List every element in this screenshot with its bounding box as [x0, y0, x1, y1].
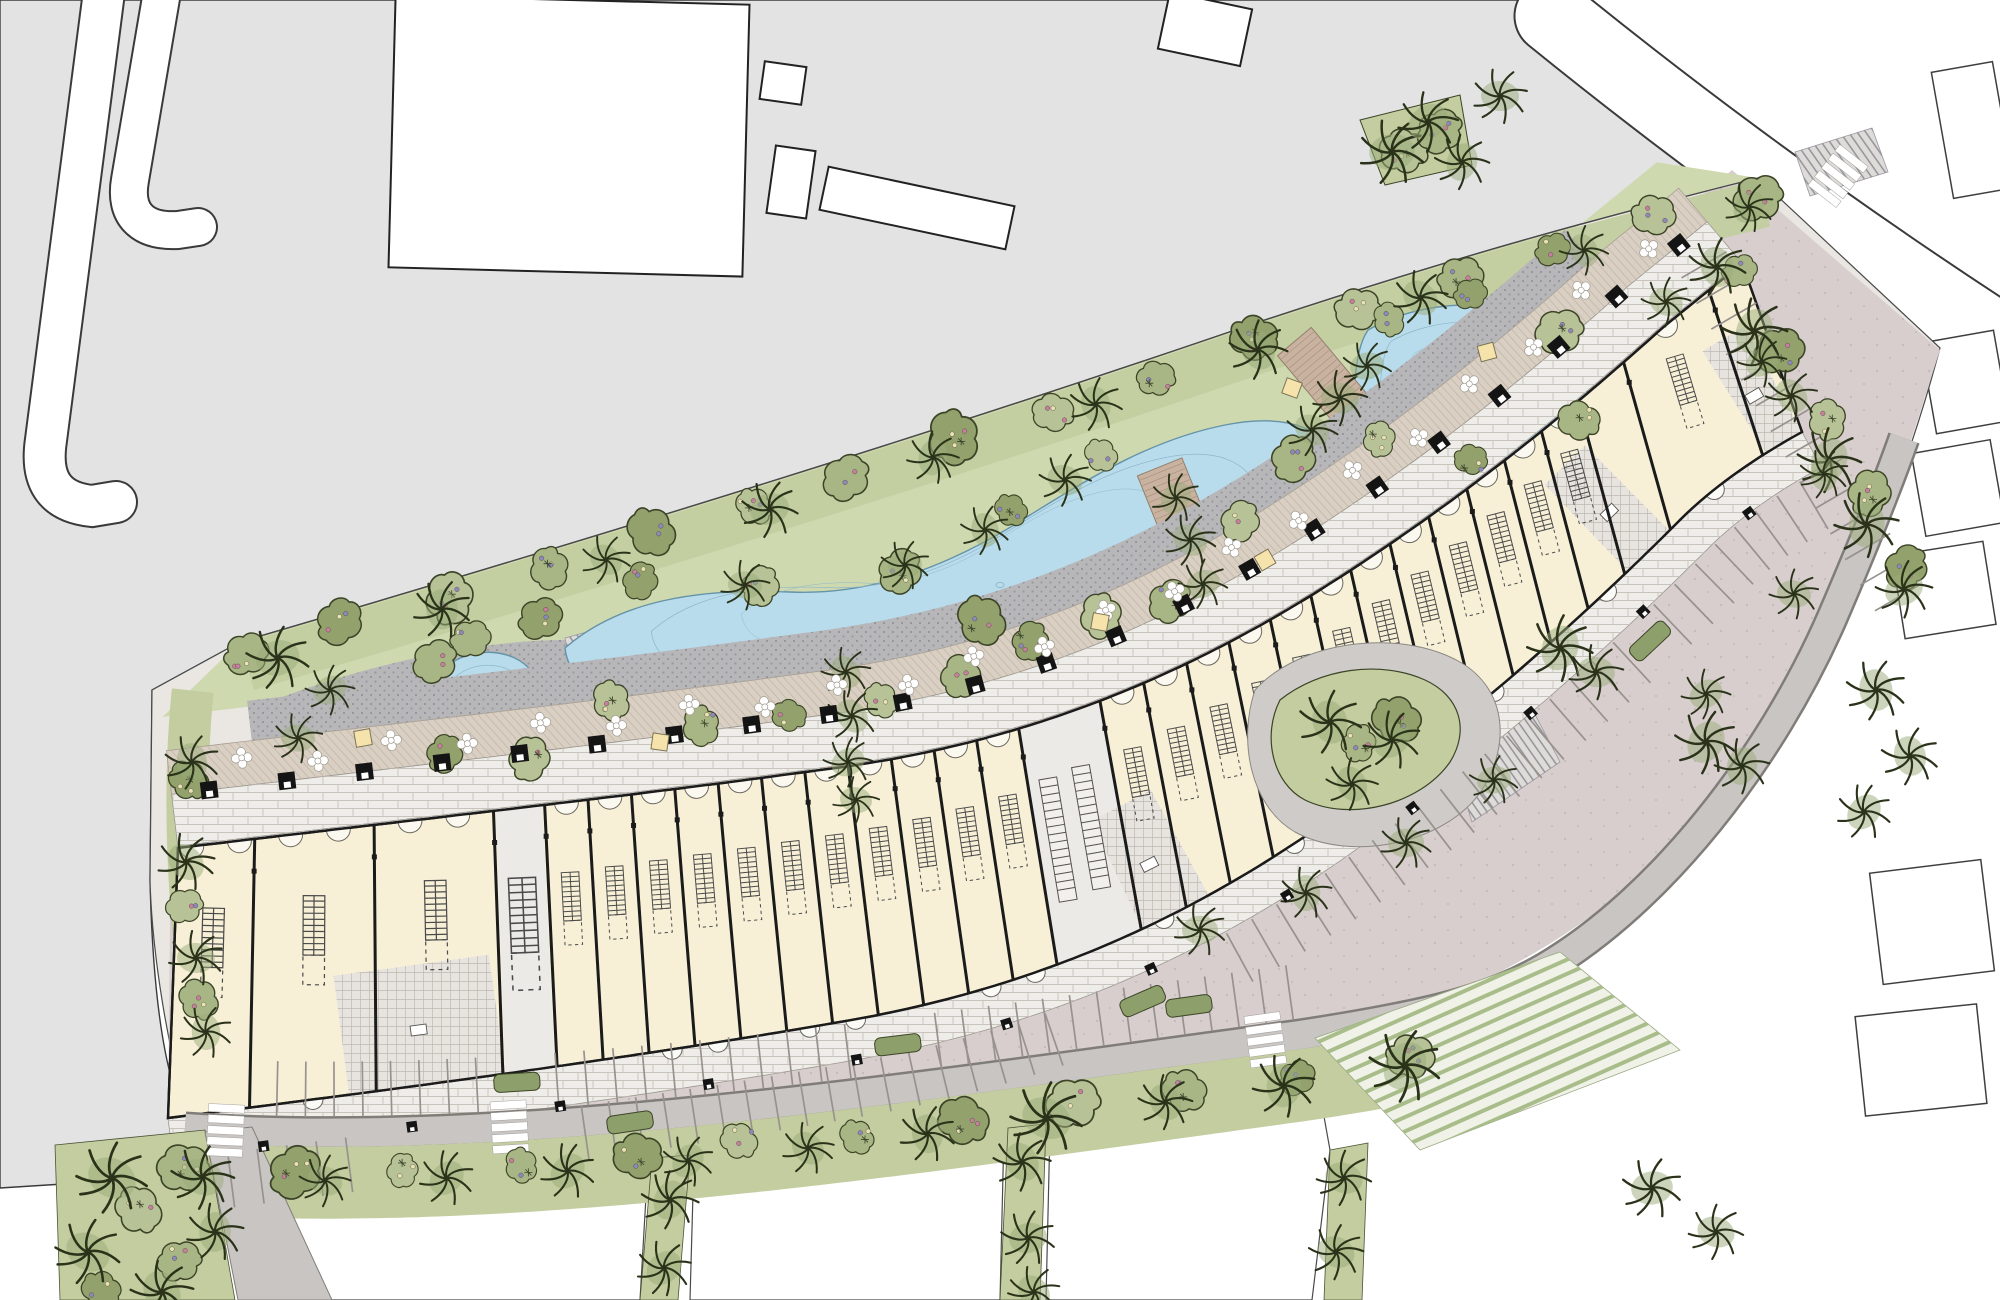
context-building-0	[389, 0, 750, 277]
site-plan-svg	[0, 0, 2000, 1300]
context-building-1	[760, 61, 807, 104]
context-building-2	[766, 146, 815, 219]
neighbor-parcel-building-5	[1855, 1004, 1987, 1116]
neighbor-parcel-building-2	[1911, 440, 2000, 537]
neighbor-parcel-building-4	[1870, 860, 1995, 985]
parking-stall-line	[362, 1061, 363, 1116]
site-plan-canvas	[0, 0, 2000, 1300]
parking-stall-line	[305, 1062, 306, 1117]
unit-party-wall	[374, 825, 376, 1091]
zebra-crossing	[206, 1104, 244, 1158]
parking-stall-line	[277, 1061, 278, 1116]
neighbor-parcel-building-0	[1931, 62, 2000, 199]
parking-tree-island	[493, 1072, 540, 1093]
zebra-crossing	[490, 1100, 529, 1154]
